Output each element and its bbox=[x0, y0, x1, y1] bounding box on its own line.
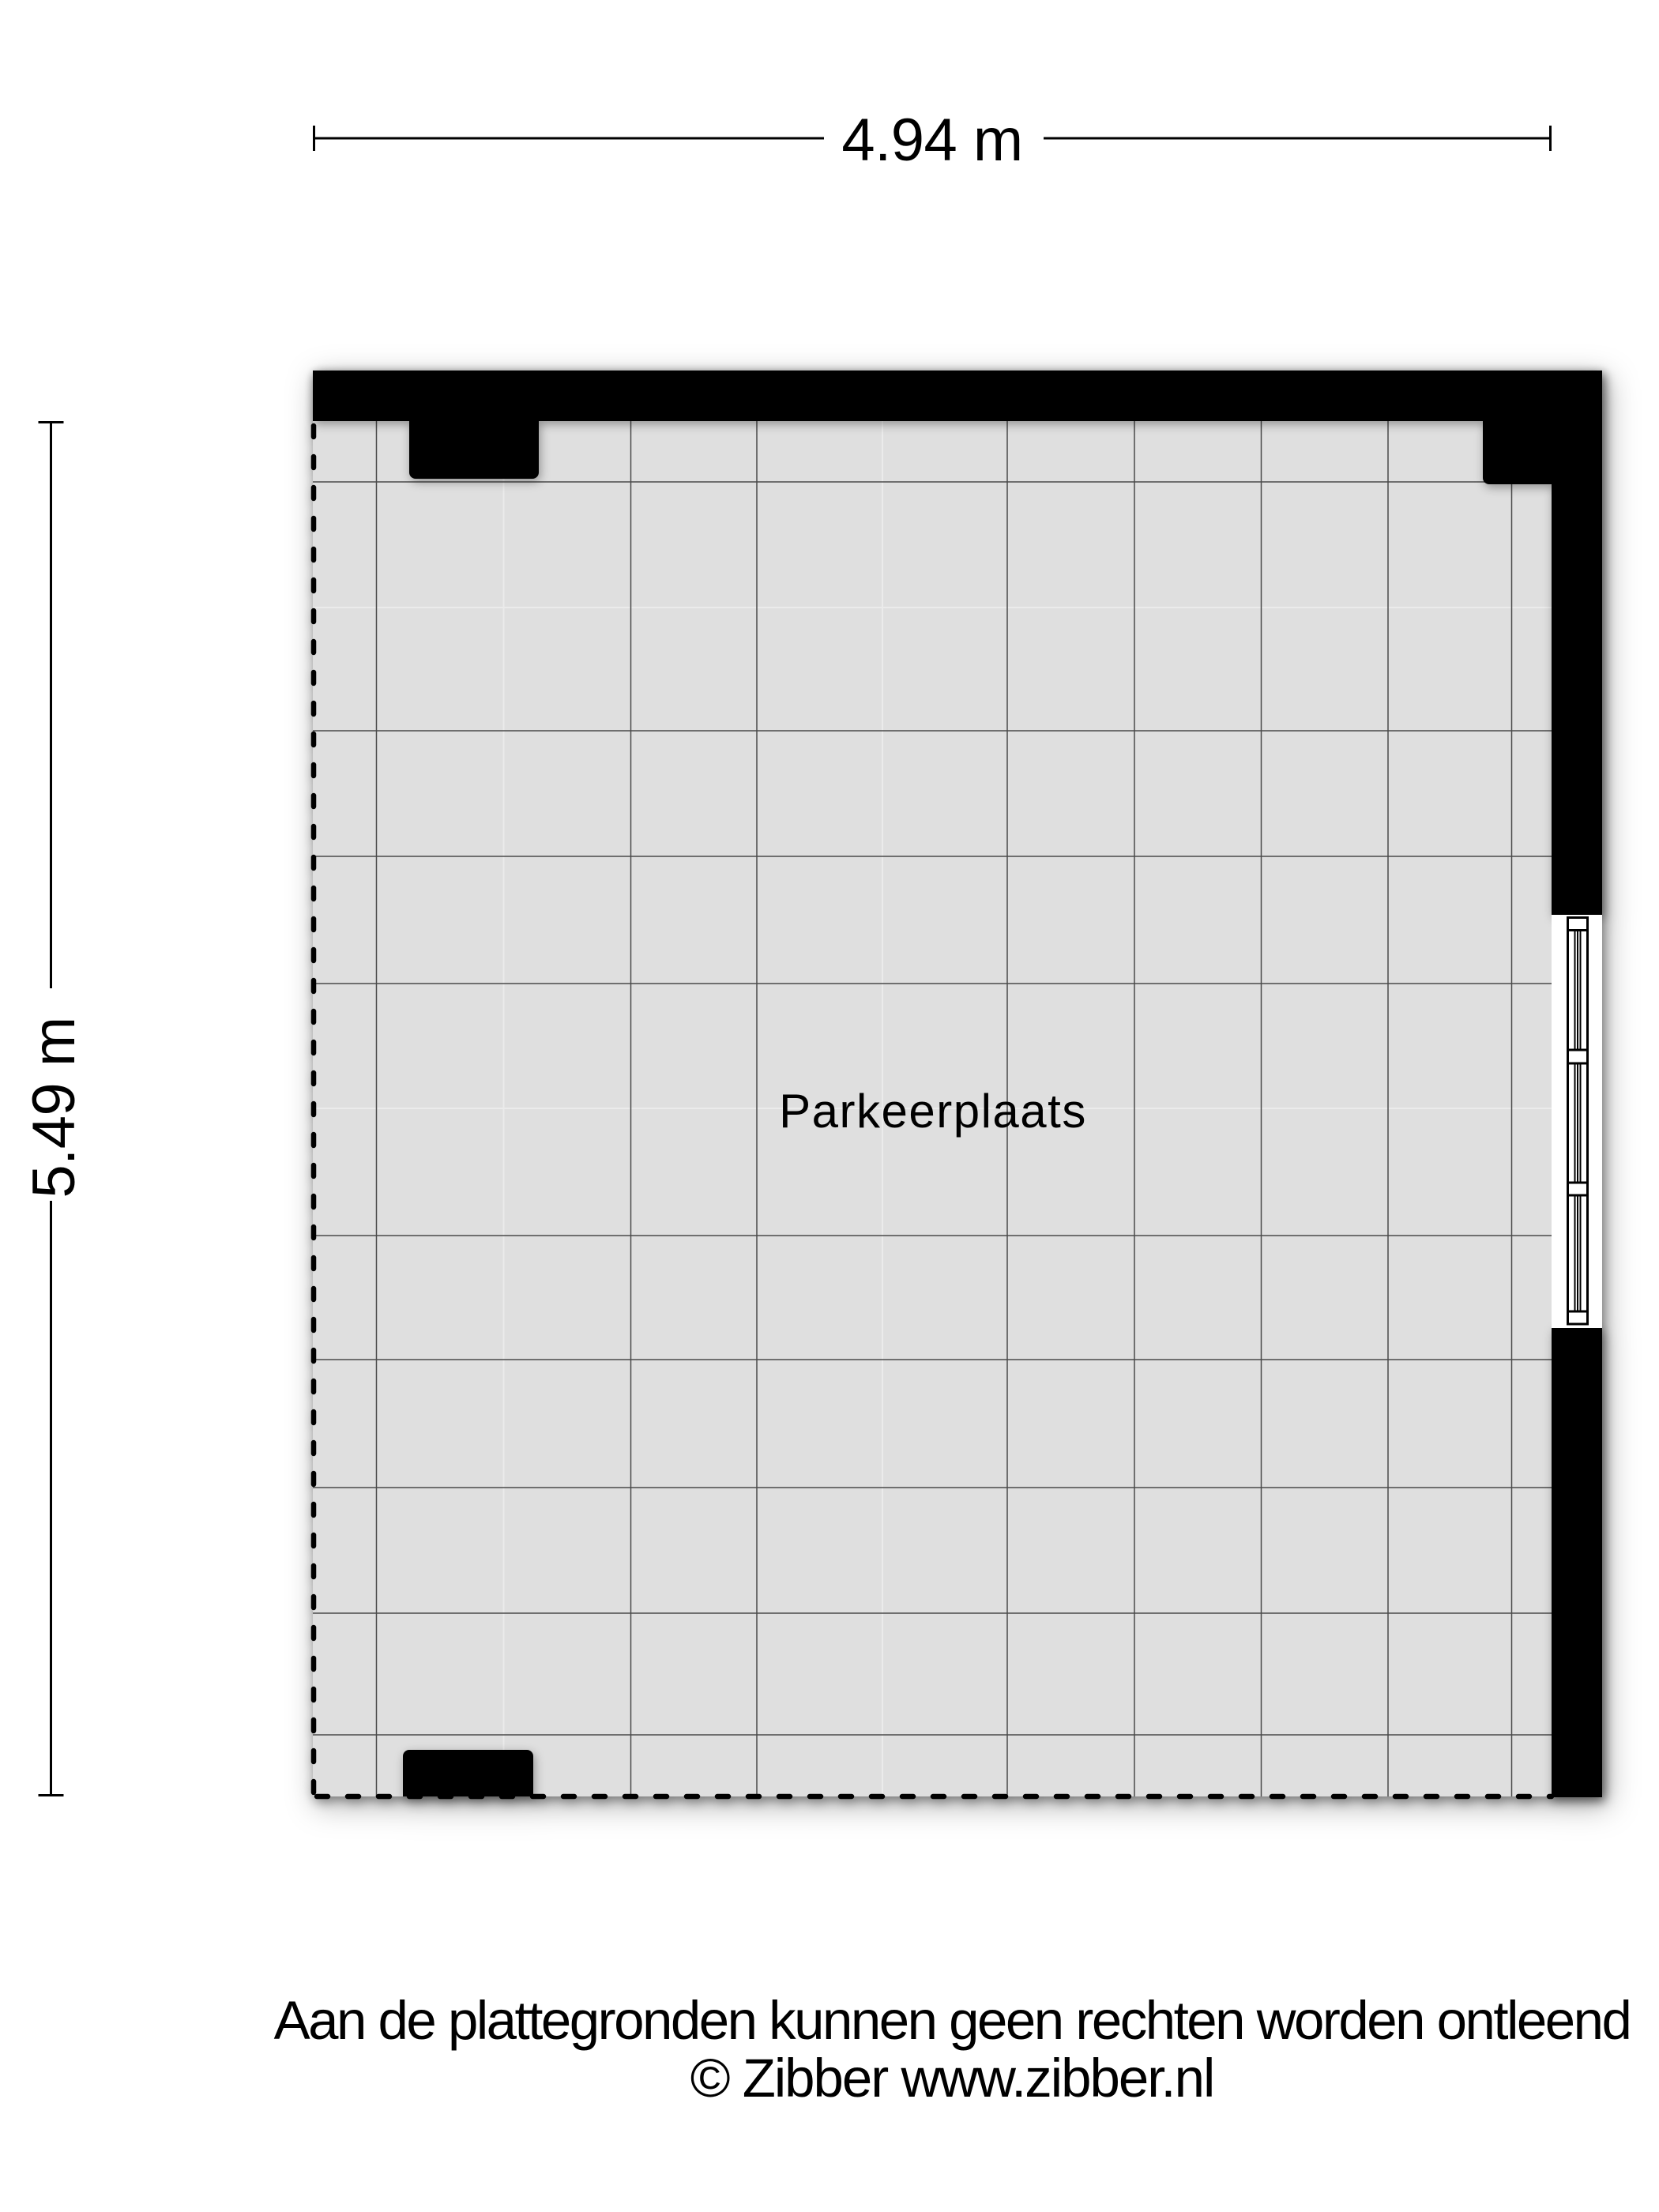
svg-text:5.49 m: 5.49 m bbox=[21, 1017, 88, 1198]
svg-text:© Zibber www.zibber.nl: © Zibber www.zibber.nl bbox=[690, 2048, 1214, 2109]
svg-text:Aan de plattegronden kunnen ge: Aan de plattegronden kunnen geen rechten… bbox=[274, 1990, 1631, 2051]
svg-text:Parkeerplaats: Parkeerplaats bbox=[779, 1085, 1087, 1138]
svg-text:4.94 m: 4.94 m bbox=[841, 107, 1022, 174]
